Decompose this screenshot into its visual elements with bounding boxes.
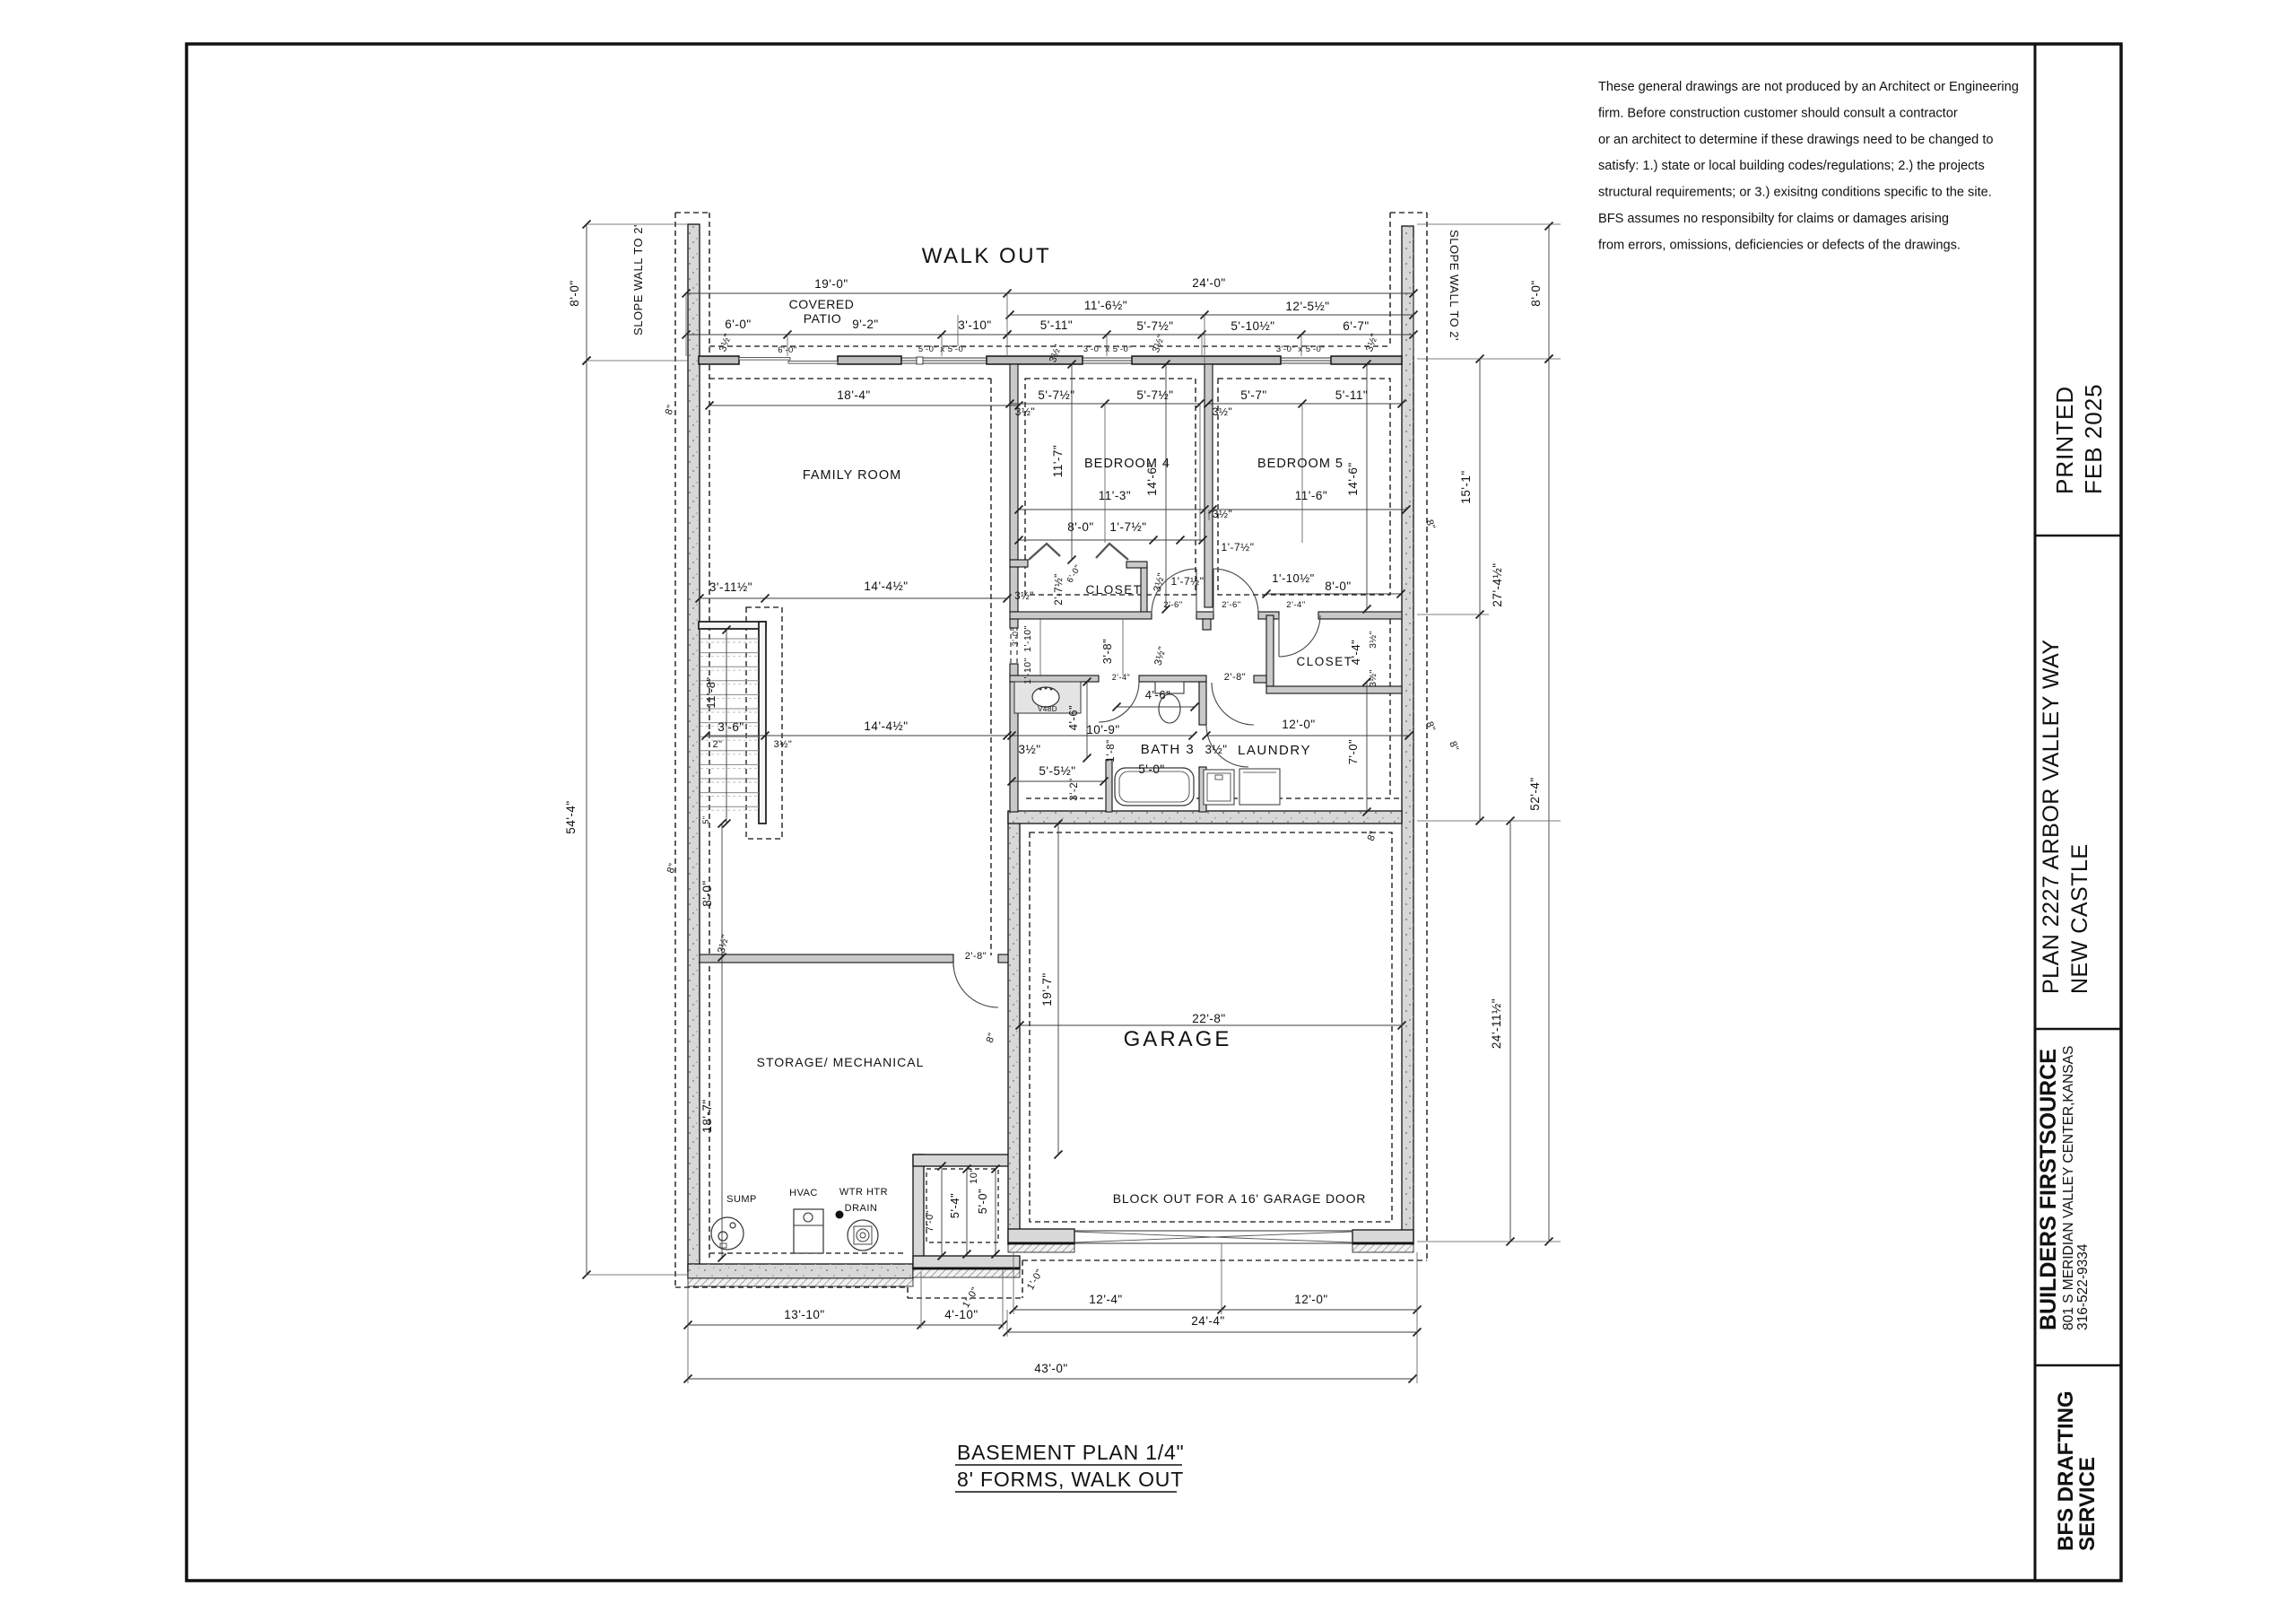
svg-text:3½": 3½" (1014, 591, 1034, 602)
svg-text:SUMP: SUMP (726, 1194, 757, 1205)
svg-text:8'-0": 8'-0" (568, 280, 581, 306)
svg-text:V48D: V48D (1038, 705, 1057, 713)
svg-text:9'-2": 9'-2" (852, 318, 878, 331)
svg-text:1'-10": 1'-10" (1022, 625, 1033, 652)
svg-text:14'-4½": 14'-4½" (864, 580, 908, 593)
svg-text:43'-0": 43'-0" (1034, 1362, 1067, 1375)
svg-text:BFS DRAFTING: BFS DRAFTING (2054, 1390, 2078, 1551)
svg-text:5'-0" x 5'-0": 5'-0" x 5'-0" (918, 344, 967, 354)
svg-text:18'-4": 18'-4" (837, 388, 870, 402)
svg-text:6'-7": 6'-7" (1343, 319, 1369, 333)
svg-text:3'-8": 3'-8" (1100, 639, 1114, 664)
svg-text:BEDROOM 5: BEDROOM 5 (1257, 457, 1344, 471)
svg-text:19'-0": 19'-0" (814, 277, 848, 291)
svg-text:24'-4": 24'-4" (1191, 1314, 1224, 1328)
svg-text:52'-4": 52'-4" (1528, 777, 1542, 810)
svg-text:11'-8": 11'-8" (704, 676, 717, 708)
svg-text:5'-11": 5'-11" (1335, 388, 1368, 402)
svg-text:2'-4": 2'-4" (1286, 600, 1305, 610)
svg-text:3½": 3½" (1368, 669, 1378, 687)
svg-text:3½": 3½" (1018, 743, 1040, 756)
svg-text:7'-0": 7'-0" (925, 1210, 935, 1232)
svg-text:2'-6": 2'-6" (1163, 600, 1182, 610)
svg-text:2'-6": 2'-6" (1222, 600, 1240, 610)
svg-text:801 S MERIDIAN VALLEY CENTER,K: 801 S MERIDIAN VALLEY CENTER,KANSAS (2061, 1046, 2076, 1330)
svg-text:FEB 2025: FEB 2025 (2080, 383, 2107, 494)
svg-text:2'-4": 2'-4" (1112, 673, 1130, 682)
svg-text:7'-0": 7'-0" (1346, 739, 1360, 764)
svg-text:14'-4½": 14'-4½" (864, 719, 908, 733)
svg-text:3½": 3½" (1205, 743, 1227, 756)
svg-text:4'-4": 4'-4" (1349, 640, 1362, 665)
svg-text:8' FORMS, WALK OUT: 8' FORMS, WALK OUT (957, 1468, 1184, 1491)
svg-text:from errors, omissions, defici: from errors, omissions, deficiencies or … (1598, 238, 1961, 252)
svg-text:WTR HTR: WTR HTR (839, 1187, 888, 1198)
svg-text:STORAGE/ MECHANICAL: STORAGE/ MECHANICAL (757, 1055, 925, 1069)
svg-text:8'-0": 8'-0" (700, 880, 714, 906)
svg-text:5'-7½": 5'-7½" (1038, 388, 1074, 402)
svg-text:5": 5" (701, 815, 710, 824)
svg-text:8'-0": 8'-0" (1325, 580, 1351, 593)
svg-text:2'-8": 2'-8" (965, 951, 987, 962)
svg-text:BATH 3: BATH 3 (1141, 742, 1195, 757)
svg-text:1'-7½": 1'-7½" (1222, 541, 1255, 553)
svg-text:GARAGE: GARAGE (1124, 1027, 1232, 1051)
svg-text:4'-6": 4'-6" (1145, 688, 1170, 702)
svg-text:8'-0": 8'-0" (1529, 280, 1543, 306)
svg-text:1'-7½": 1'-7½" (1109, 520, 1146, 534)
svg-text:15'-1": 15'-1" (1459, 470, 1473, 503)
svg-text:10'-9": 10'-9" (1086, 723, 1119, 736)
svg-text:5'-0": 5'-0" (1138, 763, 1164, 776)
svg-text:CLOSET: CLOSET (1085, 583, 1142, 597)
svg-text:BLOCK OUT FOR A 16' GARAGE DOO: BLOCK OUT FOR A 16' GARAGE DOOR (1113, 1191, 1366, 1206)
svg-text:SERVICE: SERVICE (2075, 1457, 2100, 1551)
svg-text:12'-4": 12'-4" (1089, 1293, 1122, 1306)
svg-text:3½": 3½" (1213, 508, 1232, 520)
svg-text:or an architect to determine i: or an architect to determine if these dr… (1598, 133, 1994, 147)
svg-text:3'-2": 3'-2" (1069, 778, 1080, 800)
svg-text:6'-0": 6'-0" (778, 345, 796, 355)
svg-text:BASEMENT PLAN 1/4": BASEMENT PLAN 1/4" (957, 1441, 1185, 1464)
svg-text:24'-0": 24'-0" (1192, 276, 1225, 290)
svg-text:4'-10": 4'-10" (944, 1308, 978, 1321)
svg-text:PLAN 2227 ARBOR VALLEY WAY: PLAN 2227 ARBOR VALLEY WAY (2039, 639, 2064, 994)
svg-text:5'-7": 5'-7" (1240, 388, 1266, 402)
svg-text:HVAC: HVAC (789, 1188, 818, 1198)
svg-text:24'-11½": 24'-11½" (1490, 998, 1503, 1049)
svg-text:3½": 3½" (1368, 631, 1378, 649)
svg-text:5'-0": 5'-0" (976, 1189, 989, 1214)
svg-text:8'-0": 8'-0" (1067, 520, 1093, 534)
svg-text:3'-0" x 5'-0": 3'-0" x 5'-0" (1276, 344, 1325, 354)
svg-text:12'-5½": 12'-5½" (1285, 300, 1329, 313)
svg-text:5'-5½": 5'-5½" (1039, 764, 1075, 778)
svg-text:14'-6": 14'-6" (1346, 462, 1360, 495)
svg-text:5'-10½": 5'-10½" (1231, 319, 1274, 333)
svg-text:10": 10" (969, 1168, 979, 1184)
svg-text:WALK OUT: WALK OUT (922, 244, 1051, 268)
svg-text:satisfy: 1.) state or local bu: satisfy: 1.) state or local building cod… (1598, 159, 1985, 173)
svg-text:2'-8": 2'-8" (1224, 672, 1246, 683)
svg-text:CLOSET: CLOSET (1296, 655, 1352, 668)
svg-text:BUILDERS FIRSTSOURCE: BUILDERS FIRSTSOURCE (2036, 1049, 2061, 1330)
svg-text:316-522-9334: 316-522-9334 (2075, 1243, 2091, 1330)
svg-text:COVERED: COVERED (789, 297, 855, 311)
svg-text:1'-7½": 1'-7½" (1171, 575, 1205, 588)
svg-text:5'-7½": 5'-7½" (1136, 388, 1173, 402)
svg-text:2": 2" (712, 739, 722, 750)
svg-text:11'-6½": 11'-6½" (1084, 299, 1127, 312)
svg-text:NEW CASTLE: NEW CASTLE (2067, 843, 2092, 994)
svg-text:13'-10": 13'-10" (784, 1308, 824, 1321)
svg-text:19'-7": 19'-7" (1040, 972, 1054, 1006)
svg-text:11'-7": 11'-7" (1051, 445, 1065, 477)
svg-text:3'-0": 3'-0" (1011, 628, 1020, 646)
svg-text:SLOPE WALL TO 2': SLOPE WALL TO 2' (631, 224, 645, 336)
svg-text:PRINTED: PRINTED (2051, 386, 2078, 494)
svg-text:22'-8": 22'-8" (1192, 1012, 1225, 1025)
svg-text:3½": 3½" (774, 739, 793, 750)
svg-text:5'-4": 5'-4" (948, 1193, 961, 1218)
svg-text:27'-4½": 27'-4½" (1491, 562, 1504, 606)
svg-text:3'-10": 3'-10" (958, 318, 991, 332)
svg-text:LAUNDRY: LAUNDRY (1238, 743, 1311, 758)
svg-text:3'-6": 3'-6" (717, 720, 744, 734)
svg-text:PATIO: PATIO (804, 311, 841, 326)
svg-text:5'-7½": 5'-7½" (1136, 319, 1173, 333)
svg-text:3'-0" x 5'-0": 3'-0" x 5'-0" (1083, 344, 1132, 354)
svg-text:1'-10": 1'-10" (1022, 658, 1033, 684)
svg-text:SLOPE WALL TO 2': SLOPE WALL TO 2' (1448, 230, 1461, 341)
svg-text:5'-11": 5'-11" (1040, 318, 1073, 332)
svg-text:BFS assumes no responsibilty f: BFS assumes no responsibilty for claims … (1598, 212, 1949, 226)
svg-text:DRAIN: DRAIN (845, 1203, 878, 1214)
svg-text:1'-8": 1'-8" (1106, 739, 1117, 762)
svg-text:18'-7": 18'-7" (700, 1099, 714, 1132)
svg-text:3½": 3½" (1213, 405, 1232, 418)
svg-text:4'-6": 4'-6" (1066, 705, 1080, 730)
svg-text:12'-0": 12'-0" (1294, 1293, 1327, 1306)
svg-text:54'-4": 54'-4" (564, 800, 578, 833)
svg-text:1'-10½": 1'-10½" (1272, 571, 1314, 585)
svg-text:structural requirements; or 3.: structural requirements; or 3.) exisitng… (1598, 186, 1992, 200)
svg-text:14'-6": 14'-6" (1145, 462, 1159, 495)
svg-text:11'-3": 11'-3" (1099, 489, 1131, 502)
svg-text:firm. Before construction cust: firm. Before construction customer shoul… (1598, 106, 1958, 120)
svg-text:3½": 3½" (1015, 405, 1035, 418)
svg-text:These general drawings are not: These general drawings are not produced … (1598, 80, 2019, 94)
svg-text:12'-0": 12'-0" (1282, 718, 1315, 731)
svg-text:FAMILY ROOM: FAMILY ROOM (803, 468, 901, 483)
svg-text:2'-7½": 2'-7½" (1054, 573, 1065, 606)
svg-text:11'-6": 11'-6" (1295, 489, 1327, 502)
svg-text:6'-0": 6'-0" (725, 318, 751, 331)
svg-text:3'-11½": 3'-11½" (709, 580, 752, 594)
